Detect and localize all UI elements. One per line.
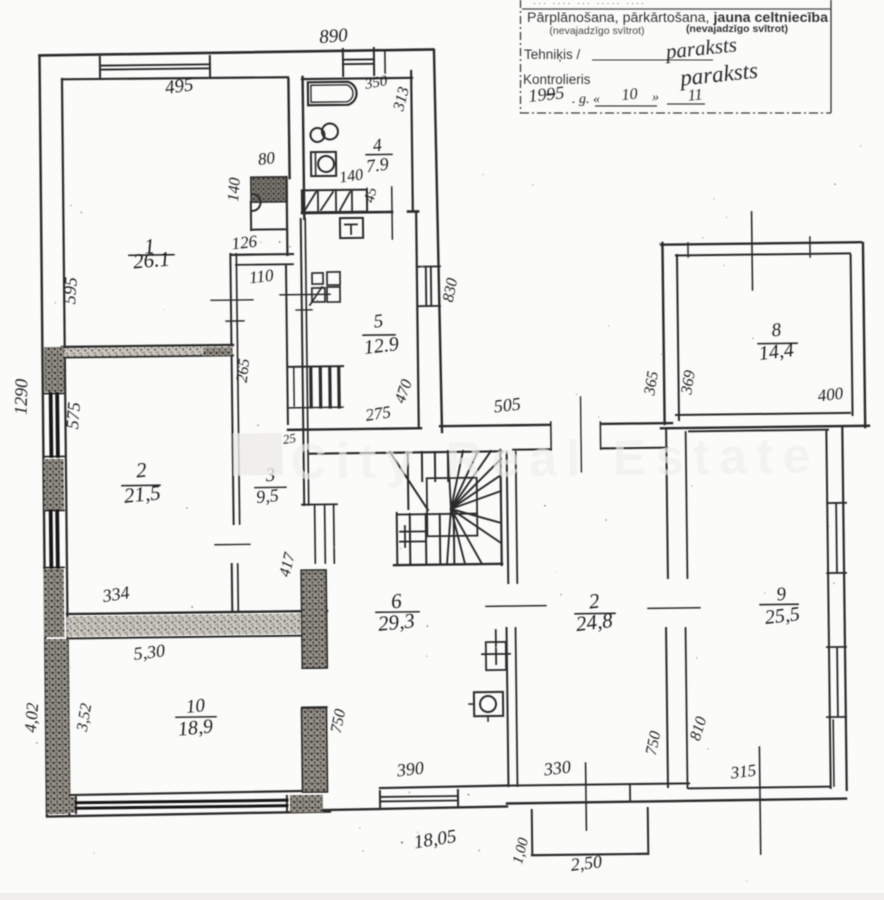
svg-text:»: » <box>652 90 659 105</box>
svg-text:265: 265 <box>234 358 254 384</box>
svg-text:575: 575 <box>62 401 84 429</box>
svg-text:7.9: 7.9 <box>365 154 390 176</box>
svg-text:595: 595 <box>59 276 81 304</box>
svg-text:4,02: 4,02 <box>21 702 42 734</box>
svg-text:334: 334 <box>100 582 131 606</box>
svg-text:25,5: 25,5 <box>764 603 801 629</box>
svg-text:12.9: 12.9 <box>363 333 400 359</box>
svg-text:330: 330 <box>542 757 572 780</box>
svg-text:Tehniķis /: Tehniķis / <box>524 47 581 62</box>
svg-text:890: 890 <box>318 25 349 48</box>
svg-text:21,5: 21,5 <box>123 480 162 508</box>
svg-text:140: 140 <box>338 166 364 186</box>
svg-text:505: 505 <box>493 394 522 417</box>
svg-text:1995: 1995 <box>527 82 565 106</box>
svg-text:126: 126 <box>231 232 259 254</box>
svg-text:26.1: 26.1 <box>132 247 171 274</box>
svg-text:275: 275 <box>364 402 392 425</box>
svg-text:29,3: 29,3 <box>377 608 416 636</box>
svg-text:2,50: 2,50 <box>569 851 603 875</box>
svg-text:400: 400 <box>817 384 845 406</box>
svg-text:11: 11 <box>687 86 703 104</box>
svg-text:24,8: 24,8 <box>575 608 615 636</box>
svg-text:City Real Estate: City Real Estate <box>290 427 811 489</box>
svg-text:14,4: 14,4 <box>758 339 795 365</box>
svg-text:1290: 1290 <box>11 379 32 415</box>
svg-text:9,5: 9,5 <box>255 485 279 507</box>
svg-text:390: 390 <box>395 758 425 781</box>
svg-text:(nevajadzīgo svītrot): (nevajadzīgo svītrot) <box>549 25 644 37</box>
svg-text:··· ···· ··· ····· ····: ··· ···· ··· ····· ···· <box>533 0 646 8</box>
svg-text:110: 110 <box>248 266 275 288</box>
svg-text:(nevajadzīgo svītrot): (nevajadzīgo svītrot) <box>686 23 788 35</box>
svg-text:10: 10 <box>185 695 206 718</box>
svg-text:10: 10 <box>621 86 638 104</box>
svg-text:140: 140 <box>225 177 244 202</box>
svg-text:. g. «: . g. « <box>572 92 600 107</box>
svg-text:495: 495 <box>164 74 195 99</box>
svg-text:315: 315 <box>729 761 758 783</box>
svg-text:80: 80 <box>257 148 277 169</box>
svg-text:18,9: 18,9 <box>177 715 214 740</box>
svg-text:5,30: 5,30 <box>132 640 166 664</box>
